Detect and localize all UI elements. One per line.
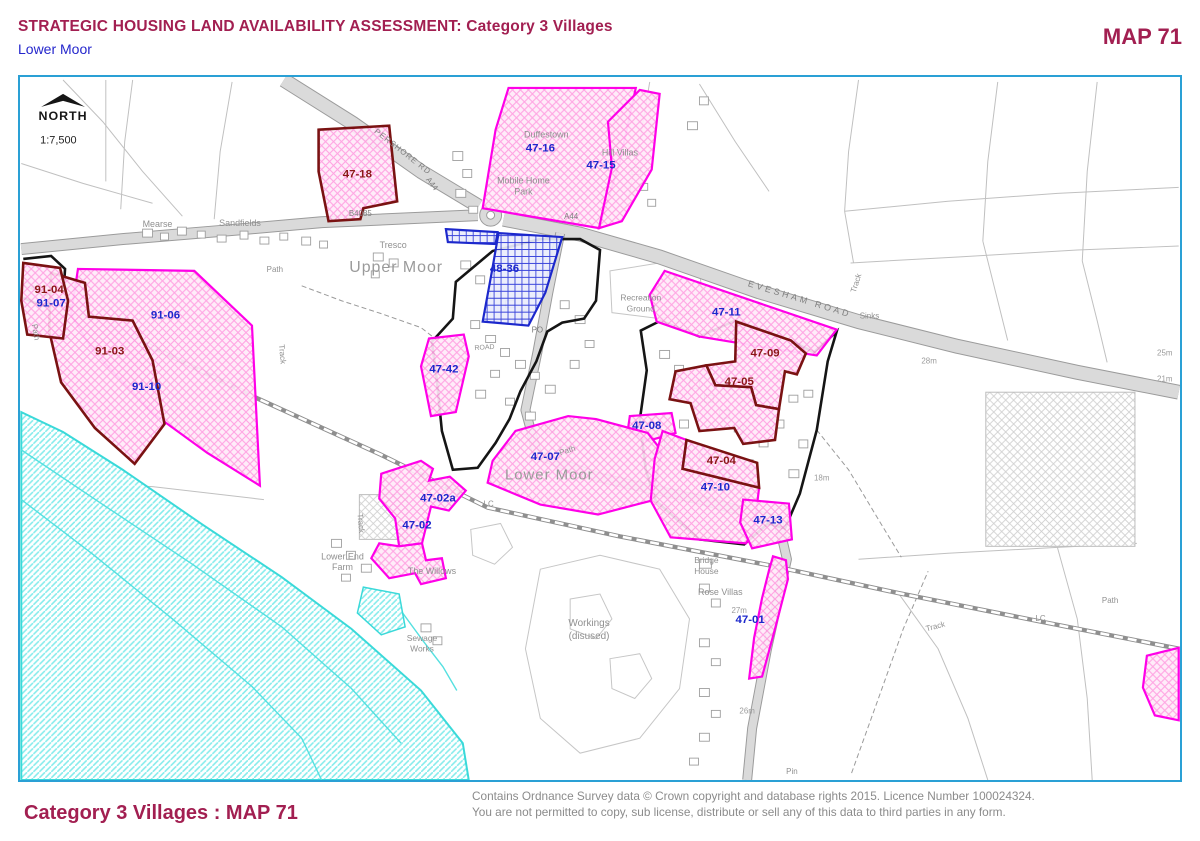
- site-label-47-18: 47-18: [343, 168, 372, 180]
- building: [260, 237, 269, 244]
- place-label: Upper Moor: [349, 259, 443, 276]
- spot-height: 26m: [739, 706, 755, 715]
- site-label-48-36: 48-36: [490, 263, 519, 275]
- building: [161, 233, 169, 240]
- place-label: Rose Villas: [698, 587, 743, 597]
- building: [648, 199, 656, 206]
- field-boundary: [214, 82, 232, 219]
- spot-height: 28m: [921, 356, 937, 365]
- building: [570, 360, 579, 368]
- building: [660, 350, 670, 358]
- building: [456, 189, 466, 197]
- place-label: Workings: [568, 618, 609, 629]
- building: [320, 241, 328, 248]
- building: [789, 395, 798, 402]
- field-boundary: [851, 246, 1179, 263]
- field-boundary: [983, 82, 998, 241]
- building: [506, 398, 515, 405]
- building: [341, 574, 350, 581]
- building: [421, 624, 431, 632]
- footer-map-title: Category 3 Villages : MAP 71: [24, 802, 298, 825]
- building: [545, 385, 555, 393]
- parcel: [1143, 648, 1179, 721]
- parcel-47-07: [488, 416, 662, 514]
- place-label: Pin: [786, 767, 797, 776]
- map-number: MAP 71: [1103, 24, 1182, 50]
- place-label: Hill Villas: [602, 148, 639, 158]
- field-boundary: [121, 80, 133, 209]
- spot-height: 27m: [731, 606, 747, 615]
- place-label: Farm: [332, 562, 353, 572]
- site-label-91-06: 91-06: [151, 310, 180, 322]
- building: [789, 470, 799, 478]
- place-label: The Willows: [408, 566, 457, 576]
- field-boundary: [1057, 547, 1092, 780]
- field-boundary: [21, 164, 152, 204]
- road-label: B4085: [349, 209, 373, 218]
- terrain-outline: [471, 523, 513, 564]
- place-label: Track: [925, 620, 946, 634]
- north-label: NORTH: [39, 109, 88, 123]
- page: STRATEGIC HOUSING LAND AVAILABILITY ASSE…: [0, 0, 1200, 841]
- building: [585, 341, 594, 348]
- map-svg: 47-1647-1547-1891-0691-0391-0448-3647-42…: [20, 77, 1180, 780]
- place-label: PO: [532, 326, 543, 335]
- place-label: Track: [356, 513, 367, 533]
- site-label-47-02a: 47-02a: [420, 493, 456, 505]
- place-label: Tresco: [380, 240, 407, 250]
- place-label: Mobile Home: [497, 175, 550, 185]
- building: [711, 599, 720, 607]
- terrain-outline: [525, 555, 689, 753]
- site-label-91-03: 91-03: [95, 345, 124, 357]
- building: [491, 370, 500, 377]
- place-label: Track: [277, 344, 288, 364]
- building: [501, 348, 510, 356]
- building: [476, 276, 485, 284]
- copyright-line2: You are not permitted to copy, sub licen…: [472, 804, 1188, 820]
- field-boundary: [1082, 261, 1107, 362]
- place-label: Sandfields: [219, 218, 261, 228]
- building: [217, 235, 226, 242]
- building: [197, 231, 205, 238]
- terrain-outline: [610, 654, 652, 699]
- place-label: LC: [484, 500, 494, 509]
- site-label-47-07: 47-07: [531, 451, 560, 463]
- site-label-47-05: 47-05: [725, 376, 755, 388]
- building: [515, 360, 525, 368]
- road-label: A44: [564, 212, 579, 221]
- place-label: ROAD: [474, 344, 495, 352]
- parcel-48-36: [483, 233, 563, 325]
- spot-height: 21m: [1157, 374, 1173, 383]
- building: [240, 231, 248, 239]
- place-label: House: [694, 566, 719, 576]
- place-label: Mearse: [143, 219, 173, 229]
- header: STRATEGIC HOUSING LAND AVAILABILITY ASSE…: [18, 18, 613, 57]
- copyright-notice: Contains Ordnance Survey data © Crown co…: [472, 788, 1188, 821]
- building: [689, 758, 698, 765]
- copyright-line1: Contains Ordnance Survey data © Crown co…: [472, 788, 1188, 804]
- site-label-47-04: 47-04: [707, 455, 737, 467]
- place-label: Works: [410, 644, 434, 654]
- place-label: Ground: [627, 304, 655, 314]
- site-label-47-15: 47-15: [586, 159, 616, 171]
- spot-height: 18m: [814, 474, 830, 483]
- hatched-land-area: [986, 392, 1135, 546]
- map-canvas: 47-1647-1547-1891-0691-0391-0448-3647-42…: [18, 75, 1182, 782]
- place-label: Path: [1102, 596, 1118, 605]
- building: [699, 689, 709, 697]
- parcel: [446, 229, 498, 244]
- building: [688, 122, 698, 130]
- pond: [357, 587, 405, 635]
- place-label: Duffestown: [524, 130, 569, 140]
- field-boundary: [845, 80, 859, 263]
- place-label: Sewage: [407, 633, 438, 643]
- place-label: Park: [514, 186, 533, 196]
- site-label-47-11: 47-11: [712, 307, 741, 319]
- building: [302, 237, 311, 245]
- building: [280, 233, 288, 240]
- field-boundary: [63, 80, 182, 216]
- building: [486, 336, 496, 343]
- place-label: Path: [30, 323, 42, 341]
- site-label-47-42: 47-42: [429, 363, 458, 375]
- site-label-91-10: 91-10: [132, 381, 161, 393]
- place-label: Recreation: [620, 293, 661, 303]
- building: [530, 372, 539, 379]
- footpath-dashed: [302, 286, 435, 339]
- site-label-91-04: 91-04: [35, 284, 65, 296]
- building: [476, 390, 486, 398]
- page-subtitle: Lower Moor: [18, 41, 613, 57]
- field-boundary: [845, 187, 1179, 211]
- building: [804, 390, 813, 397]
- place-label: LC: [1035, 614, 1045, 623]
- place-label: Path: [267, 265, 283, 274]
- field-boundary: [699, 84, 769, 191]
- building: [453, 152, 463, 161]
- footpath-dashed: [817, 430, 902, 557]
- place-label: Track: [849, 272, 864, 293]
- parcel-47-02: [371, 543, 446, 584]
- building: [699, 97, 708, 105]
- scale-label: 1:7,500: [40, 135, 76, 147]
- spot-height: 25m: [1157, 348, 1173, 357]
- page-title: STRATEGIC HOUSING LAND AVAILABILITY ASSE…: [18, 18, 613, 36]
- roundabout-island: [487, 211, 495, 219]
- place-label: (disused): [569, 631, 610, 642]
- place-label: Lower End: [321, 551, 364, 561]
- building: [560, 301, 569, 309]
- place-label: Sinks: [860, 312, 879, 321]
- place-label: Bridge: [694, 555, 719, 565]
- building: [177, 227, 186, 235]
- site-label-91-07: 91-07: [37, 298, 66, 310]
- site-label-47-09: 47-09: [750, 347, 779, 359]
- building: [799, 440, 808, 448]
- site-label-47-13: 47-13: [753, 514, 782, 526]
- building: [143, 229, 153, 237]
- building: [463, 169, 472, 177]
- building: [711, 710, 720, 717]
- building: [361, 564, 371, 572]
- building: [699, 639, 709, 647]
- site-label-47-16: 47-16: [526, 143, 555, 155]
- field-boundary: [983, 241, 1008, 340]
- building: [332, 539, 342, 547]
- building: [680, 420, 689, 428]
- field-boundary: [1082, 82, 1097, 261]
- site-label-47-10: 47-10: [701, 482, 730, 494]
- building: [525, 412, 535, 420]
- building: [699, 733, 709, 741]
- building: [471, 321, 480, 329]
- site-label-47-01: 47-01: [736, 614, 766, 626]
- footpath-dashed: [852, 571, 929, 773]
- building: [711, 659, 720, 666]
- site-label-47-02: 47-02: [402, 519, 431, 531]
- place-label: Lower Moor: [505, 468, 594, 484]
- building: [469, 206, 478, 213]
- building: [461, 261, 471, 269]
